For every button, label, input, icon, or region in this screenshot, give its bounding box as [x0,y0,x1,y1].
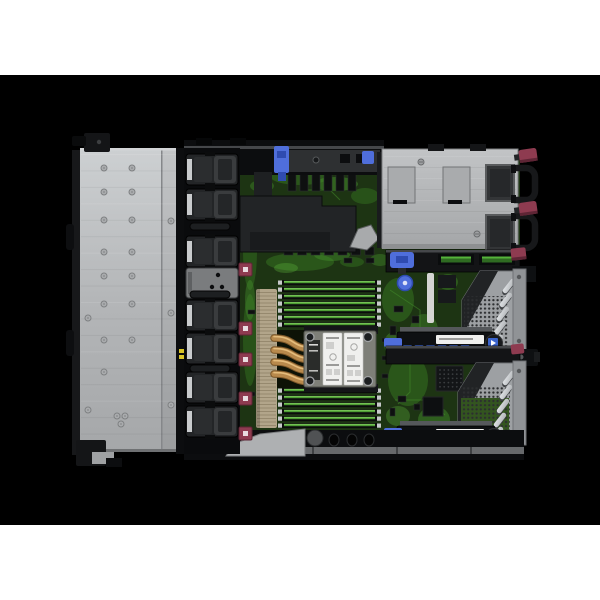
fan-module [186,404,238,439]
screw-hole-center [170,404,172,406]
riser1-slot-edge [482,257,512,259]
dimm-module-highlight [284,295,375,296]
screw-hole-center [131,191,133,193]
brush-line [81,269,185,270]
smd-component [398,396,406,402]
bga-pin [456,386,458,388]
brush-line [81,384,185,385]
panel-sheet-main [80,148,162,452]
screw-hole-center [87,409,89,411]
bga-pin [448,382,450,384]
fan-bank [186,152,238,439]
cable-grommet [347,434,357,446]
psu-back-grille [490,169,510,197]
fan-module [186,331,238,366]
dimm-latch [377,417,381,421]
rail-joint [396,447,398,454]
fan-wall-divider [176,148,184,454]
wall-tab [230,138,246,145]
riser2-maroon-tab [511,343,525,354]
riser1-barcode [439,338,473,340]
brush-line [81,335,185,336]
fan-clip [205,187,215,191]
screw-hole-center [103,191,105,193]
fan-clip [205,404,215,408]
panel-seam [161,150,163,450]
fan-rotor-hub [218,377,232,398]
connector-key [243,326,248,331]
fin-shade [256,289,260,428]
fan-rotor-hub [218,338,232,359]
dimm-latch [377,288,381,292]
brush-line [81,154,185,155]
brush-line [81,368,185,369]
smd-component [390,408,395,416]
smd-component [394,306,403,312]
smd-component [414,404,420,410]
cable-socket [336,174,344,191]
fan-pull-handle [190,365,230,372]
screw-hole-center [124,415,126,417]
dimm-latch [377,396,381,400]
screw-hole-center [116,415,118,417]
emi-gasket-strip [72,150,81,455]
fan-cable-connector [239,392,252,405]
riser2-bar-edge [386,346,520,349]
fan-pull-handle [190,223,230,230]
smd-component [382,374,388,378]
dimm-latch [377,295,381,299]
screw-hole-center [170,220,172,222]
dimm-latch [278,323,282,327]
bga-pin [452,378,454,380]
product-photo-canvas [0,0,600,600]
smd-component [366,258,374,263]
cable-socket [348,174,356,191]
cable-grommet [329,434,339,446]
riser2-bar [386,346,520,364]
psu-top-tab [428,144,444,151]
dimm-module-highlight [284,288,375,289]
bga-pin [448,373,450,375]
fan-rotor-left [194,157,212,182]
screw-hole-center [131,339,133,341]
dimm-latch [377,424,381,428]
cpu-side-label-text [309,350,318,352]
dimm-bank [278,388,381,435]
bga-pin [460,382,462,384]
fan-cable-connector [239,263,252,276]
cpu-side-label [307,340,320,380]
bga-pin [448,369,450,371]
riser1-maroon-tab [510,247,526,261]
brush-line [81,351,185,352]
bga-pin [448,386,450,388]
screw-hole-center [103,219,105,221]
dimm-module-highlight [284,417,375,418]
warning-sticker [179,355,184,359]
fan-blank-hole [220,285,224,289]
fan-clip [205,298,215,302]
brush-line [81,417,185,418]
fan-cable-connector [239,427,252,440]
fan-clip [205,218,215,222]
riser1-mount-rail [400,327,492,332]
dimm-module-highlight [284,302,375,303]
dimm-latch [278,288,282,292]
bga-pin [443,386,445,388]
fan-rotor-hub [218,194,232,215]
riser1-rail-screw [517,275,521,279]
dimm-latch [278,302,282,306]
psu-top-tab [470,144,486,151]
dimm-latch [377,403,381,407]
bga-pin [460,373,462,375]
cpu-instruction-label-2 [344,333,363,385]
wall-slot [340,154,350,163]
screw-hole-center [103,251,105,253]
bga-pin [443,382,445,384]
latch-foot [278,172,286,181]
fan-clip [205,331,215,335]
bga-pin [443,369,445,371]
pcie-socket [438,275,456,288]
bga-pin [452,382,454,384]
fan-module [186,298,238,333]
screw-hole-center [103,371,105,373]
riser1-rail-screw [517,339,521,343]
server-internal-photo [0,0,600,600]
cpu-side-label-text [309,370,318,372]
fan-connector-strip [187,411,192,432]
bga-pin [460,378,462,380]
connector-key [243,396,248,401]
dimm-latch [278,295,282,299]
psu-bay [377,144,538,251]
rail-joint [470,447,472,454]
dimm-latch [278,410,282,414]
fan-clip [205,435,215,439]
bga-pin [439,369,441,371]
screw-hole-center [103,303,105,305]
screw-hole-center [103,167,105,169]
riser1-rail [513,269,526,351]
screw-hole-center [131,167,133,169]
dimm-latch [377,410,381,414]
side-latch-bump [66,330,74,356]
brush-line [81,318,185,319]
psu-screw-slot [419,162,423,163]
dimm-latch [377,281,381,285]
dimm-latch [278,309,282,313]
brush-line [81,434,185,435]
screw-hole-center [131,303,133,305]
fan-blank-hole [210,285,214,289]
smd-component [344,258,352,263]
screw-hole-center [131,219,133,221]
wall-tab [196,138,212,145]
dimm-module-highlight [284,281,375,282]
psu-cutout-slot [448,200,462,204]
fan-cable-connector [239,322,252,335]
bga-pin [452,373,454,375]
fan-clip [205,183,215,187]
warning-sticker [179,349,184,353]
dimm-latch [278,281,282,285]
pcb-blob [274,263,298,273]
psu-handle-mount [511,195,516,203]
psu-handle-mount [511,213,516,221]
fan-rotor-left [194,336,212,361]
fan-rotor-left [194,375,212,400]
dimm-latch [377,316,381,320]
dimm-module-highlight [284,323,375,324]
fan-connector-strip [187,377,192,398]
cpu-screw [364,377,373,386]
psu-cutout [443,167,470,203]
m2-standoff [427,273,434,323]
fan-connector-strip [187,194,192,215]
psu-cutout-slot [393,200,407,204]
fan-module [186,370,238,405]
dimm-latch [377,302,381,306]
brush-line [384,211,516,212]
bga-pin [439,386,441,388]
fan-connector-strip [187,338,192,359]
fan-clip [205,152,215,156]
screw-hole-center [131,251,133,253]
bga-chip [436,366,463,391]
front-panel [66,133,186,467]
dimm-module-highlight [284,396,375,397]
bga-pin [456,382,458,384]
bga-pin [443,373,445,375]
psu-cutout [388,167,415,203]
psu-back-grille [490,219,510,247]
cable-grommet [307,430,323,446]
dimm-module-highlight [284,316,375,317]
baffle-column [254,172,272,198]
fan-connector-strip [187,159,192,180]
cpu-screw [364,333,373,342]
dimm-latch [377,309,381,313]
riser2-rail-screw [517,369,521,373]
smd-component [390,326,396,335]
dimm-latch [278,389,282,393]
brush-line [81,286,185,287]
dimm-module-highlight [284,424,375,425]
brush-line [81,236,185,237]
cable-socket [312,174,320,191]
bga-pin [456,369,458,371]
bga-pin [452,369,454,371]
bga-pin [443,378,445,380]
dimm-module-highlight [284,410,375,411]
fan-rotor-hub [218,159,232,180]
dimm-latch [278,316,282,320]
fan-module [186,152,238,187]
fan-rotor-hub [218,411,232,432]
wall-screw [313,157,319,163]
brush-line [81,187,185,188]
fan-cable-connector [239,353,252,366]
fan-rotor-hub [218,241,232,262]
smd-component [412,316,419,323]
cpu-screw [306,333,314,341]
riser2-mount-rail [400,421,492,426]
dimm-bank [278,280,381,327]
psu-handle-mount [511,165,516,173]
dimm-latch [278,396,282,400]
cpu-side-label-text [309,344,318,346]
bga-pin [448,378,450,380]
cable-grommet [364,434,374,446]
bga-pin [456,373,458,375]
fan-blank-hole [216,273,220,277]
dimm-module-highlight [284,309,375,310]
smd-component [248,310,255,314]
bga-pin [460,369,462,371]
fan-module [186,187,238,222]
screw-hole-center [131,275,133,277]
fan-rotor-left [194,303,212,328]
brush-line [384,156,516,157]
cpu-assembly [304,326,378,392]
fan-connector-strip [187,241,192,262]
screw-hole-center [170,312,172,314]
screw-hole-center [87,317,89,319]
fan-rotor-left [194,409,212,434]
fan-pull-handle [190,291,230,298]
fan-blank-stripe [188,272,192,294]
dimm-latch [278,403,282,407]
bga-pin [439,373,441,375]
rail-joint [312,447,314,454]
fan-connector-strip [187,305,192,326]
screw-hole-center [103,275,105,277]
screw-hole-center [103,339,105,341]
blue-thumbscrew [397,275,413,291]
connector-key [243,431,248,436]
fan-rotor-left [194,239,212,264]
connector-key [243,357,248,362]
blue-tab [362,151,374,164]
pcie-socket [438,290,456,303]
screw-hole-center [120,423,122,425]
fan-module [186,234,238,269]
psu-screw-slot [475,234,479,235]
dimm-latch [278,417,282,421]
cable-socket [300,174,308,191]
cpu-instruction-label-1 [323,333,342,385]
connector-key [243,267,248,272]
bga-pin [456,378,458,380]
bga-pin [439,382,441,384]
cable-socket [324,174,332,191]
latch-body [274,146,289,173]
cable-socket [288,174,296,191]
dimm-module-highlight [284,403,375,404]
cpu-screw [306,377,314,385]
fan-rotor-left [194,192,212,217]
latch-notch [277,151,286,158]
brush-line [81,203,185,204]
fan-rotor-hub [218,305,232,326]
bga-pin [452,386,454,388]
brush-line [81,401,185,402]
asic-chip [423,397,443,416]
bga-pin [439,378,441,380]
side-latch-bump [66,224,74,250]
fan-clip [205,234,215,238]
dimm-latch [278,424,282,428]
riser1-slot-edge [441,257,471,259]
air-baffle-shadow [250,232,330,250]
